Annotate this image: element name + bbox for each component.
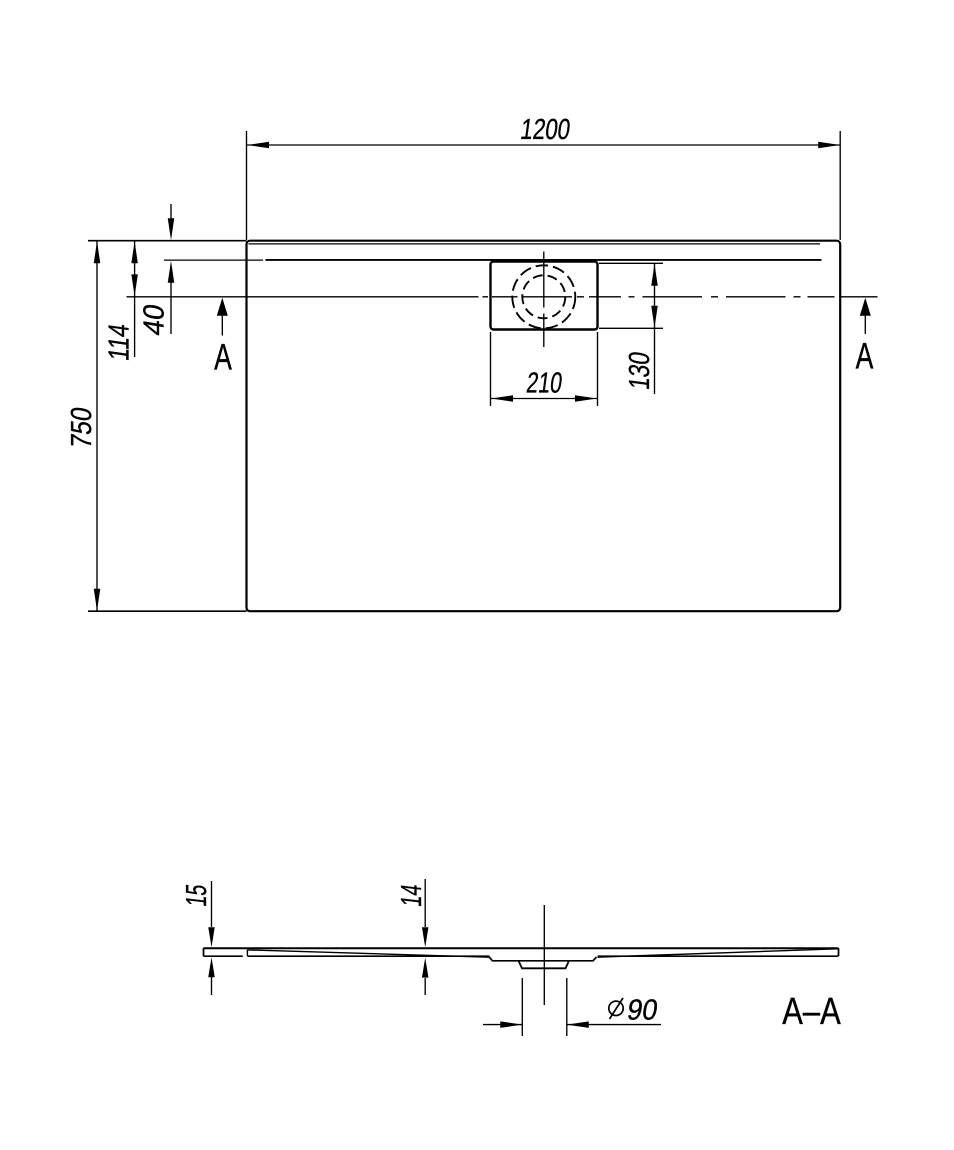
svg-text:15: 15	[180, 883, 213, 909]
svg-text:114: 114	[102, 322, 135, 363]
svg-text:210: 210	[525, 367, 564, 399]
svg-text:14: 14	[395, 882, 428, 908]
svg-text:1200: 1200	[519, 112, 573, 146]
svg-text:A: A	[856, 335, 874, 376]
svg-text:750: 750	[65, 405, 97, 450]
svg-text:A–A: A–A	[782, 991, 841, 1033]
svg-text:90: 90	[625, 993, 660, 1026]
svg-text:40: 40	[138, 302, 171, 338]
svg-text:130: 130	[622, 350, 655, 392]
svg-text:A: A	[214, 336, 232, 377]
